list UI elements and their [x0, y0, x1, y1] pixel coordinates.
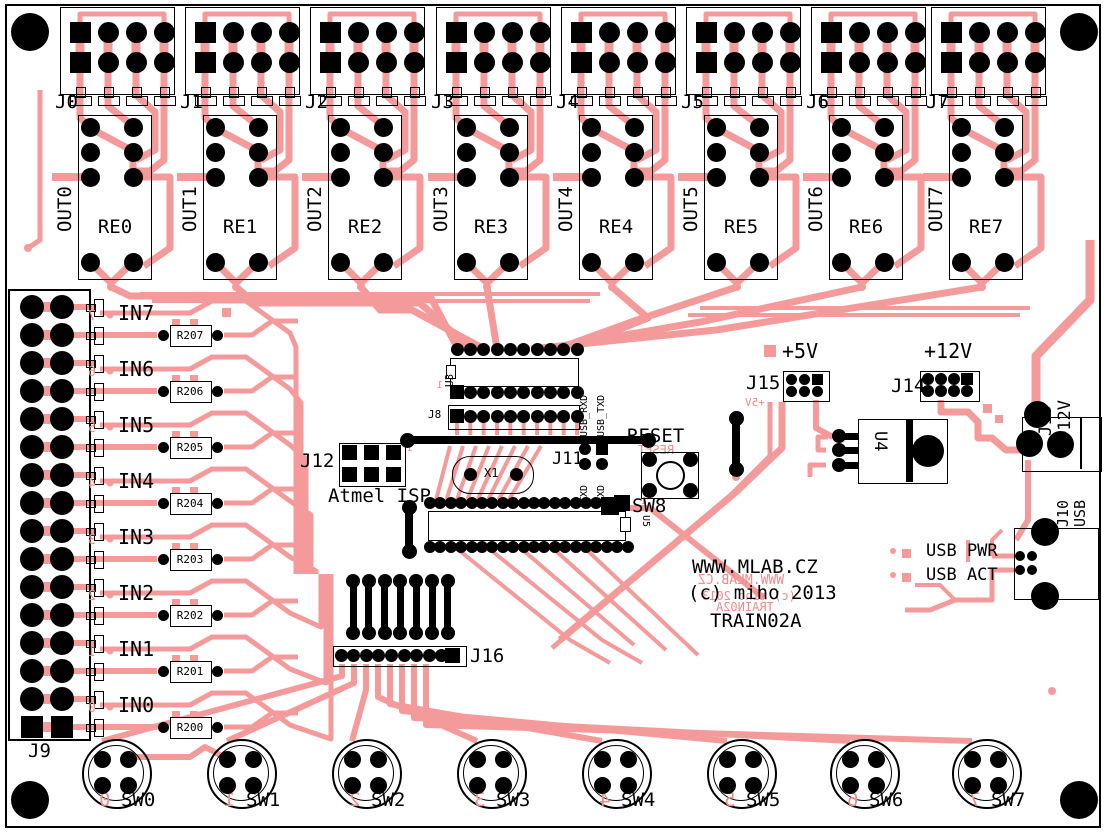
- through-hole-pad: [905, 52, 926, 73]
- through-hole-pad: [206, 168, 225, 187]
- through-hole-pad: [500, 253, 519, 272]
- output-label-OUT7: OUT7: [927, 186, 946, 232]
- switch-channel-number-mirror: 1: [224, 791, 235, 810]
- pin-foot-icon: [279, 96, 301, 106]
- pin1-square-pad: [70, 52, 91, 73]
- through-hole-pad: [331, 253, 350, 272]
- j14-pad: [948, 373, 960, 385]
- mounting-hole: [1060, 13, 1098, 51]
- through-hole-pad: [952, 168, 971, 187]
- through-hole-pad: [599, 22, 620, 43]
- through-hole-pad: [20, 295, 44, 319]
- through-hole-pad: [158, 610, 169, 621]
- through-hole-pad: [596, 458, 608, 470]
- through-hole-pad: [842, 751, 859, 768]
- through-hole-pad: [249, 168, 268, 187]
- through-hole-pad: [50, 323, 74, 347]
- j9-label: J9: [28, 742, 51, 761]
- pin-foot-icon: [599, 96, 621, 106]
- through-hole-pad: [724, 22, 745, 43]
- pin1-square-pad: [446, 52, 467, 73]
- connector-label-J7: J7: [926, 93, 949, 112]
- through-hole-pad: [832, 143, 851, 162]
- through-hole-pad: [995, 253, 1014, 272]
- through-hole-pad: [20, 547, 44, 571]
- through-hole-pad: [374, 253, 393, 272]
- j9-channel-number-mirror: 7: [88, 310, 96, 323]
- through-hole-pad: [849, 52, 870, 73]
- through-hole-pad: [517, 343, 530, 356]
- resistor-label-R203: R203: [170, 554, 210, 565]
- through-hole-pad: [50, 491, 74, 515]
- through-hole-pad: [50, 463, 74, 487]
- relay-label-RE3: RE3: [456, 218, 526, 237]
- through-hole-pad: [531, 343, 544, 356]
- switch-channel-number-mirror: 7: [969, 791, 980, 810]
- through-hole-pad: [707, 168, 726, 187]
- j9-channel-number-mirror: 4: [88, 478, 96, 491]
- through-hole-pad: [206, 253, 225, 272]
- switch-label-SW1: SW1: [246, 791, 280, 810]
- switch-label-SW2: SW2: [371, 791, 405, 810]
- through-hole-pad: [997, 52, 1018, 73]
- pin-foot-icon: [154, 96, 176, 106]
- switch-label-SW4: SW4: [621, 791, 655, 810]
- j9-channel-number-mirror: 6: [88, 366, 96, 379]
- through-hole-pad: [464, 343, 477, 356]
- pcb-board: U3 1 J8 J12 1 Atmel ISP X1 J11 USB_RXD U…: [0, 0, 1107, 832]
- through-hole-pad: [362, 574, 376, 588]
- through-hole-pad: [279, 52, 300, 73]
- plus5v-label-mirror: +5V: [745, 397, 765, 408]
- through-hole-pad: [20, 407, 44, 431]
- input-label-IN4: IN4: [118, 471, 154, 491]
- through-hole-pad: [50, 575, 74, 599]
- through-hole-pad: [223, 22, 244, 43]
- pin-foot-icon: [752, 96, 774, 106]
- j9-pin-bar-icon: [94, 607, 104, 625]
- pin1-square-pad: [21, 716, 43, 738]
- through-hole-pad: [571, 343, 584, 356]
- through-hole-pad: [469, 751, 486, 768]
- through-hole-pad: [374, 118, 393, 137]
- input-label-IN3: IN3: [118, 527, 154, 547]
- through-hole-pad: [223, 52, 244, 73]
- input-label-IN6: IN6: [118, 359, 154, 379]
- through-hole-pad: [683, 452, 698, 467]
- plus5v-label: +5V: [782, 341, 818, 361]
- through-hole-pad: [495, 751, 512, 768]
- through-hole-pad: [400, 433, 415, 448]
- through-hole-pad: [625, 168, 644, 187]
- through-hole-pad: [995, 118, 1014, 137]
- through-hole-pad: [124, 118, 143, 137]
- resistor-label-R202: R202: [170, 610, 210, 621]
- j13-label: J13: [1038, 405, 1055, 436]
- j12-pad: [342, 467, 357, 482]
- j8-label: J8: [428, 409, 441, 420]
- j9-channel-number-mirror: 2: [88, 590, 96, 603]
- through-hole-pad: [158, 666, 169, 677]
- j15-pad: [799, 386, 810, 397]
- usb-act-label: USB ACT: [926, 567, 998, 584]
- through-hole-pad: [94, 751, 111, 768]
- j14-label: J14: [891, 377, 925, 396]
- j12-pad: [364, 445, 379, 460]
- through-hole-pad: [627, 22, 648, 43]
- through-hole-pad: [1025, 52, 1046, 73]
- through-hole-pad: [557, 410, 570, 423]
- through-hole-pad: [249, 143, 268, 162]
- through-hole-pad: [20, 631, 44, 655]
- u5-outline: [428, 511, 626, 541]
- through-hole-pad: [20, 323, 44, 347]
- pin-foot-icon: [849, 96, 871, 106]
- through-hole-pad: [206, 118, 225, 137]
- switch-channel-number-mirror: 3: [474, 791, 485, 810]
- switch-label-SW7: SW7: [991, 791, 1025, 810]
- through-hole-pad: [20, 687, 44, 711]
- through-hole-pad: [344, 751, 361, 768]
- through-hole-pad: [126, 22, 147, 43]
- relay-label-RE6: RE6: [831, 218, 901, 237]
- u5-label: U5: [640, 515, 650, 527]
- pin-foot-icon: [98, 96, 120, 106]
- pin-foot-icon: [780, 96, 802, 106]
- connector-label-J0: J0: [55, 93, 78, 112]
- output-label-OUT1: OUT1: [181, 186, 200, 232]
- through-hole-pad: [50, 603, 74, 627]
- j9-pin-bar-icon: [94, 383, 104, 401]
- j9-pin-bar-icon: [94, 327, 104, 345]
- through-hole-pad: [158, 722, 169, 733]
- usb-rxd-label: USB_RXD: [580, 395, 590, 437]
- through-hole-pad: [378, 626, 392, 640]
- pin-foot-icon: [404, 96, 426, 106]
- j12-pad: [364, 467, 379, 482]
- through-hole-pad: [331, 168, 350, 187]
- jumper-wire-horizontal: [405, 436, 650, 444]
- through-hole-pad: [212, 442, 223, 453]
- through-hole-pad: [729, 411, 744, 426]
- pin-foot-icon: [530, 96, 552, 106]
- relay-label-RE0: RE0: [80, 218, 150, 237]
- through-hole-pad: [1025, 22, 1046, 43]
- pin1-square-pad: [571, 22, 592, 43]
- through-hole-pad: [964, 751, 981, 768]
- through-hole-pad: [20, 491, 44, 515]
- through-hole-pad: [500, 118, 519, 137]
- through-hole-pad: [348, 22, 369, 43]
- j15-label: J15: [746, 374, 780, 393]
- j15-pad: [812, 386, 823, 397]
- j14-pad: [961, 385, 973, 397]
- through-hole-pad: [331, 143, 350, 162]
- j14-pad: [935, 373, 947, 385]
- u3-outline: [450, 358, 579, 387]
- through-hole-pad: [158, 554, 169, 565]
- relay-label-RE5: RE5: [706, 218, 776, 237]
- through-hole-pad: [81, 143, 100, 162]
- through-hole-pad: [504, 410, 517, 423]
- through-hole-pad: [212, 722, 223, 733]
- crystal-label: X1: [484, 467, 498, 479]
- reset-button-actuator: [656, 461, 685, 490]
- through-hole-pad: [868, 751, 885, 768]
- through-hole-pad: [404, 22, 425, 43]
- through-hole-pad: [905, 22, 926, 43]
- pin1-square-pad: [450, 385, 464, 399]
- j9-pin-bar-icon: [94, 719, 104, 737]
- j10-signal-pad: [1027, 551, 1037, 561]
- output-label-OUT2: OUT2: [306, 186, 325, 232]
- pin1-square-pad: [941, 22, 962, 43]
- resistor-label-R206: R206: [170, 386, 210, 397]
- through-hole-pad: [464, 386, 477, 399]
- through-hole-pad: [594, 751, 611, 768]
- pin-foot-icon: [126, 96, 148, 106]
- through-hole-pad: [425, 626, 439, 640]
- through-hole-pad: [81, 253, 100, 272]
- through-hole-pad: [212, 610, 223, 621]
- through-hole-pad: [832, 168, 851, 187]
- through-hole-pad: [530, 52, 551, 73]
- through-hole-pad: [719, 751, 736, 768]
- through-hole-pad: [582, 253, 601, 272]
- txd-label: TXD: [580, 485, 590, 503]
- connector-label-J4: J4: [556, 93, 579, 112]
- pin1-square-pad: [821, 52, 842, 73]
- through-hole-pad: [952, 253, 971, 272]
- relay-label-RE4: RE4: [581, 218, 651, 237]
- through-hole-pad: [952, 118, 971, 137]
- through-hole-pad: [126, 52, 147, 73]
- through-hole-pad: [502, 22, 523, 43]
- copyright-label: (c) miho 2013: [688, 584, 837, 603]
- through-hole-pad: [477, 386, 490, 399]
- j10-signal-pad: [1015, 565, 1025, 575]
- through-hole-pad: [374, 143, 393, 162]
- through-hole-pad: [251, 22, 272, 43]
- through-hole-pad: [750, 168, 769, 187]
- input-label-IN1: IN1: [118, 639, 154, 659]
- through-hole-pad: [402, 544, 417, 559]
- through-hole-pad: [212, 666, 223, 677]
- through-hole-pad: [50, 547, 74, 571]
- j9-pin-bar-icon: [94, 439, 104, 457]
- pin1-square-pad: [614, 495, 630, 511]
- through-hole-pad: [120, 751, 137, 768]
- pin1-square-pad: [450, 409, 464, 423]
- through-hole-pad: [376, 52, 397, 73]
- through-hole-pad: [457, 118, 476, 137]
- through-hole-pad: [995, 143, 1014, 162]
- through-hole-pad: [877, 52, 898, 73]
- through-hole-pad: [491, 343, 504, 356]
- pin1-square-pad: [320, 52, 341, 73]
- through-hole-pad: [877, 22, 898, 43]
- pin1-square-pad: [596, 443, 608, 455]
- through-hole-pad: [347, 649, 360, 662]
- through-hole-pad: [158, 386, 169, 397]
- pin1-square-pad: [51, 716, 73, 738]
- resistor-label-R201: R201: [170, 666, 210, 677]
- through-hole-pad: [344, 777, 361, 794]
- j9-pin-bar-icon: [94, 495, 104, 513]
- through-hole-pad: [20, 519, 44, 543]
- through-hole-pad: [374, 168, 393, 187]
- through-hole-pad: [346, 574, 360, 588]
- through-hole-pad: [625, 118, 644, 137]
- switch-label-SW5: SW5: [746, 791, 780, 810]
- connector-label-J5: J5: [681, 93, 704, 112]
- through-hole-pad: [158, 498, 169, 509]
- through-hole-pad: [969, 52, 990, 73]
- output-label-OUT3: OUT3: [432, 186, 451, 232]
- through-hole-pad: [464, 468, 477, 481]
- through-hole-pad: [491, 410, 504, 423]
- pin1-square-pad: [320, 22, 341, 43]
- through-hole-pad: [849, 22, 870, 43]
- switch-channel-number-mirror: 4: [599, 791, 610, 810]
- through-hole-pad: [620, 751, 637, 768]
- through-hole-pad: [158, 330, 169, 341]
- j9-channel-number-mirror: 0: [88, 702, 96, 715]
- pin1-square-pad: [195, 22, 216, 43]
- through-hole-pad: [474, 22, 495, 43]
- through-hole-pad: [707, 143, 726, 162]
- output-label-OUT4: OUT4: [557, 186, 576, 232]
- resistor-label-R204: R204: [170, 498, 210, 509]
- connector-label-J2: J2: [305, 93, 328, 112]
- through-hole-pad: [582, 118, 601, 137]
- through-hole-pad: [752, 52, 773, 73]
- through-hole-pad: [582, 143, 601, 162]
- through-hole-pad: [50, 519, 74, 543]
- j15-pin1-pad: [812, 374, 823, 385]
- through-hole-pad: [500, 143, 519, 162]
- j14-pad: [935, 385, 947, 397]
- j9-pin-bar-icon: [94, 663, 104, 681]
- pin-foot-icon: [223, 96, 245, 106]
- through-hole-pad: [20, 603, 44, 627]
- through-hole-pad: [504, 386, 517, 399]
- mounting-hole: [11, 781, 49, 819]
- through-hole-pad: [404, 52, 425, 73]
- through-hole-pad: [683, 483, 698, 498]
- through-hole-pad: [517, 410, 530, 423]
- through-hole-pad: [504, 343, 517, 356]
- pin1-square-pad: [941, 52, 962, 73]
- through-hole-pad: [219, 777, 236, 794]
- u4-pin-pad: [832, 458, 846, 472]
- j15-pad: [799, 374, 810, 385]
- j12-pad: [386, 445, 401, 460]
- through-hole-pad: [206, 143, 225, 162]
- j16-pin1-pad: [445, 648, 460, 663]
- switch-label-SW0: SW0: [121, 791, 155, 810]
- rxd-label: RXD: [597, 485, 607, 503]
- through-hole-pad: [158, 442, 169, 453]
- through-hole-pad: [469, 777, 486, 794]
- j9-channel-number-mirror: 3: [88, 534, 96, 547]
- through-hole-pad: [98, 52, 119, 73]
- input-label-IN7: IN7: [118, 303, 154, 323]
- resistor-label-R205: R205: [170, 442, 210, 453]
- through-hole-pad: [441, 574, 455, 588]
- through-hole-pad: [212, 498, 223, 509]
- j16-label: J16: [470, 647, 504, 666]
- j9-pin-bar-icon: [94, 551, 104, 569]
- through-hole-pad: [451, 343, 464, 356]
- through-hole-pad: [81, 118, 100, 137]
- through-hole-pad: [477, 343, 490, 356]
- through-hole-pad: [94, 777, 111, 794]
- through-hole-pad: [464, 410, 477, 423]
- through-hole-pad: [50, 631, 74, 655]
- reset-label: RESET: [627, 427, 684, 446]
- through-hole-pad: [425, 574, 439, 588]
- pin-foot-icon: [877, 96, 899, 106]
- through-hole-pad: [531, 386, 544, 399]
- through-hole-pad: [719, 777, 736, 794]
- through-hole-pad: [410, 649, 423, 662]
- output-label-OUT6: OUT6: [807, 186, 826, 232]
- through-hole-pad: [212, 330, 223, 341]
- switch-channel-number-mirror: 0: [99, 791, 110, 810]
- through-hole-pad: [544, 410, 557, 423]
- u4-tab-hole: [912, 435, 944, 467]
- relay-label-RE7: RE7: [951, 218, 1021, 237]
- through-hole-pad: [245, 751, 262, 768]
- through-hole-pad: [457, 168, 476, 187]
- through-hole-pad: [385, 649, 398, 662]
- through-hole-pad: [50, 435, 74, 459]
- through-hole-pad: [622, 541, 634, 553]
- through-hole-pad: [362, 626, 376, 640]
- j14-pad: [948, 385, 960, 397]
- through-hole-pad: [251, 52, 272, 73]
- through-hole-pad: [995, 168, 1014, 187]
- pin-foot-icon: [655, 96, 677, 106]
- j10-label: J10: [1056, 500, 1071, 527]
- relay-label-RE2: RE2: [330, 218, 400, 237]
- through-hole-pad: [249, 118, 268, 137]
- through-hole-pad: [124, 253, 143, 272]
- through-hole-pad: [625, 143, 644, 162]
- through-hole-pad: [832, 253, 851, 272]
- through-hole-pad: [346, 626, 360, 640]
- through-hole-pad: [398, 649, 411, 662]
- through-hole-pad: [279, 22, 300, 43]
- through-hole-pad: [625, 253, 644, 272]
- switch-label-SW3: SW3: [496, 791, 530, 810]
- through-hole-pad: [423, 649, 436, 662]
- through-hole-pad: [219, 751, 236, 768]
- through-hole-pad: [249, 253, 268, 272]
- usb-type-label: USB: [1073, 500, 1088, 527]
- through-hole-pad: [752, 22, 773, 43]
- mounting-hole: [11, 13, 49, 51]
- through-hole-pad: [212, 386, 223, 397]
- u4-pin-pad: [832, 429, 846, 443]
- pin1-square-pad: [571, 52, 592, 73]
- through-hole-pad: [557, 386, 570, 399]
- through-hole-pad: [599, 52, 620, 73]
- website-label: WWW.MLAB.CZ: [692, 558, 818, 577]
- through-hole-pad: [20, 575, 44, 599]
- j15-pad: [786, 374, 797, 385]
